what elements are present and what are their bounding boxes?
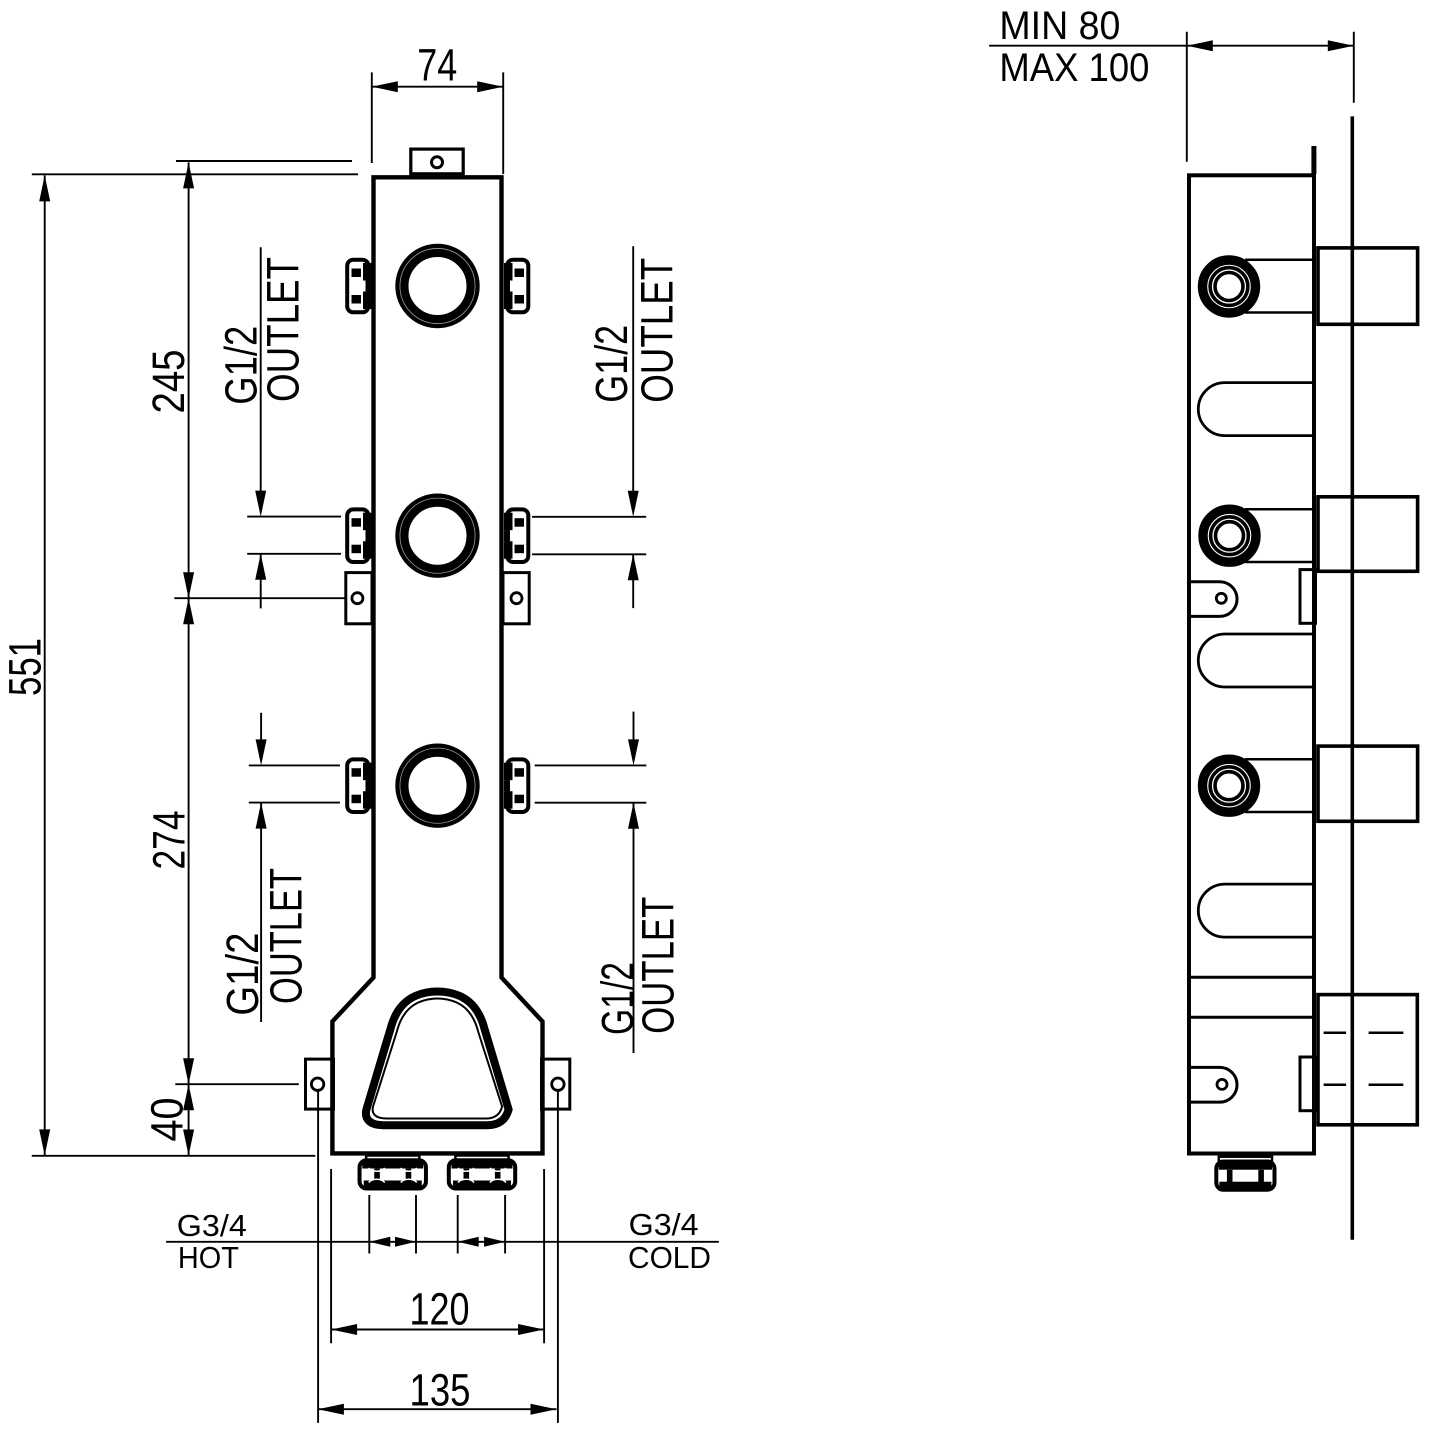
svg-text:OUTLET: OUTLET: [632, 897, 683, 1034]
svg-text:274: 274: [144, 811, 195, 870]
svg-text:COLD: COLD: [628, 1241, 711, 1275]
svg-text:OUTLET: OUTLET: [257, 257, 308, 402]
svg-text:120: 120: [410, 1284, 470, 1335]
svg-text:OUTLET: OUTLET: [260, 868, 311, 1004]
svg-text:G1/2: G1/2: [586, 325, 637, 403]
svg-text:135: 135: [410, 1365, 471, 1416]
svg-text:551: 551: [0, 638, 51, 696]
svg-text:MAX 100: MAX 100: [999, 46, 1149, 90]
svg-text:OUTLET: OUTLET: [631, 258, 682, 403]
svg-text:G3/4: G3/4: [177, 1209, 247, 1243]
svg-text:40: 40: [142, 1098, 193, 1142]
svg-text:MIN 80: MIN 80: [999, 4, 1120, 48]
svg-text:HOT: HOT: [178, 1241, 239, 1275]
svg-text:74: 74: [417, 40, 457, 91]
svg-text:245: 245: [143, 350, 194, 414]
svg-text:G3/4: G3/4: [629, 1208, 699, 1242]
